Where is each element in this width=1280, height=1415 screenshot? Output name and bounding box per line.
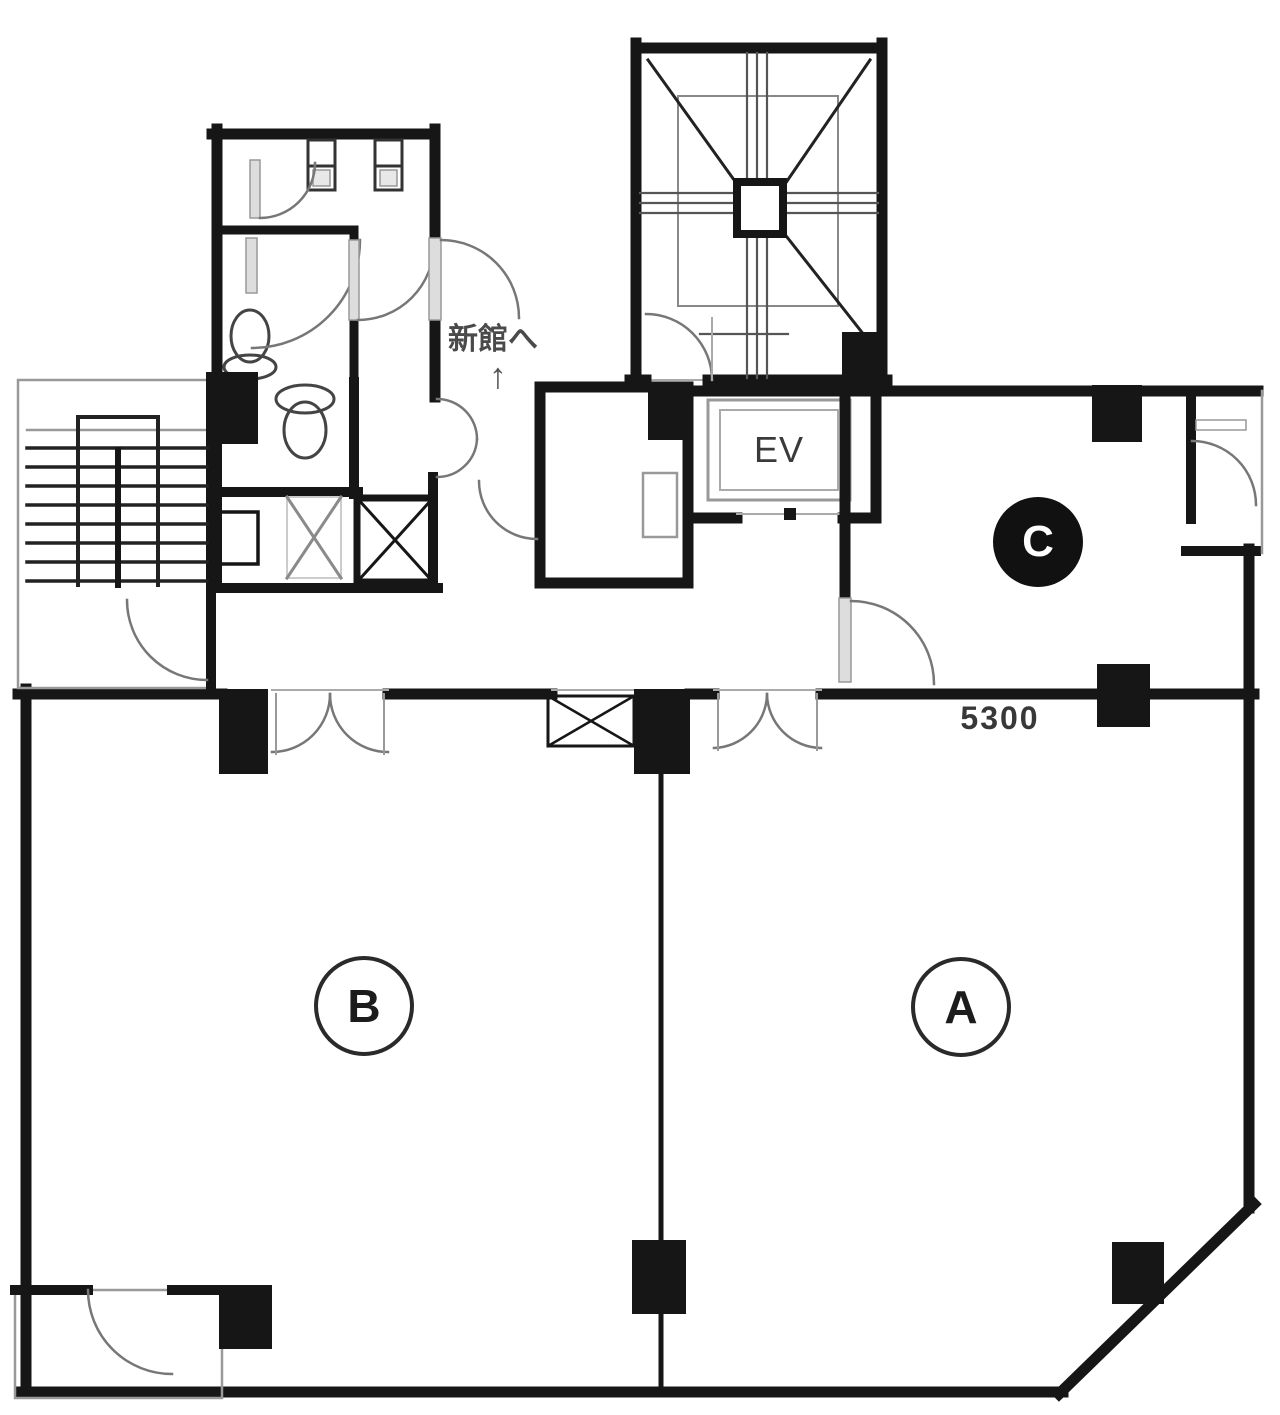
elevator-label: EV <box>708 400 850 500</box>
double-door-room-a <box>714 694 821 750</box>
stairwell-core <box>737 182 783 234</box>
swing-door-x <box>287 497 341 578</box>
new-wing-annotation: 新館へ <box>448 316 608 356</box>
floor-plan-canvas: EV 新館へ ↑ 5300 B A C <box>0 0 1280 1415</box>
pipe-shaft-box <box>357 498 433 582</box>
stair-door-arc <box>127 600 207 680</box>
room-b-label: B <box>314 956 414 1056</box>
corridor-door-arc <box>479 481 537 539</box>
toilet-icon-lower <box>276 385 334 458</box>
left-staircase <box>18 378 211 689</box>
restroom-partitions <box>217 230 354 382</box>
toilet-icon-upper <box>224 310 276 379</box>
double-door-room-b <box>272 694 388 754</box>
entry-door-arc <box>88 1290 172 1374</box>
floor-plan-drawing <box>0 0 1280 1415</box>
room-c-entry-door <box>839 598 934 684</box>
room-c-niche <box>1186 391 1262 553</box>
stairwell <box>630 43 887 380</box>
room-c-label: C <box>993 497 1083 587</box>
sink-fixture <box>308 140 402 190</box>
niche-door-arc <box>1192 441 1256 505</box>
stairwell-door-arc <box>646 314 712 380</box>
wall-duct-box <box>548 696 634 746</box>
dimension-5300: 5300 <box>930 698 1070 738</box>
room-a-label: A <box>911 957 1011 1057</box>
service-fixture <box>643 473 677 537</box>
entry-vestibule <box>15 1290 225 1398</box>
new-wing-arrow: ↑ <box>478 352 518 400</box>
elevator-door-stop <box>784 508 796 520</box>
